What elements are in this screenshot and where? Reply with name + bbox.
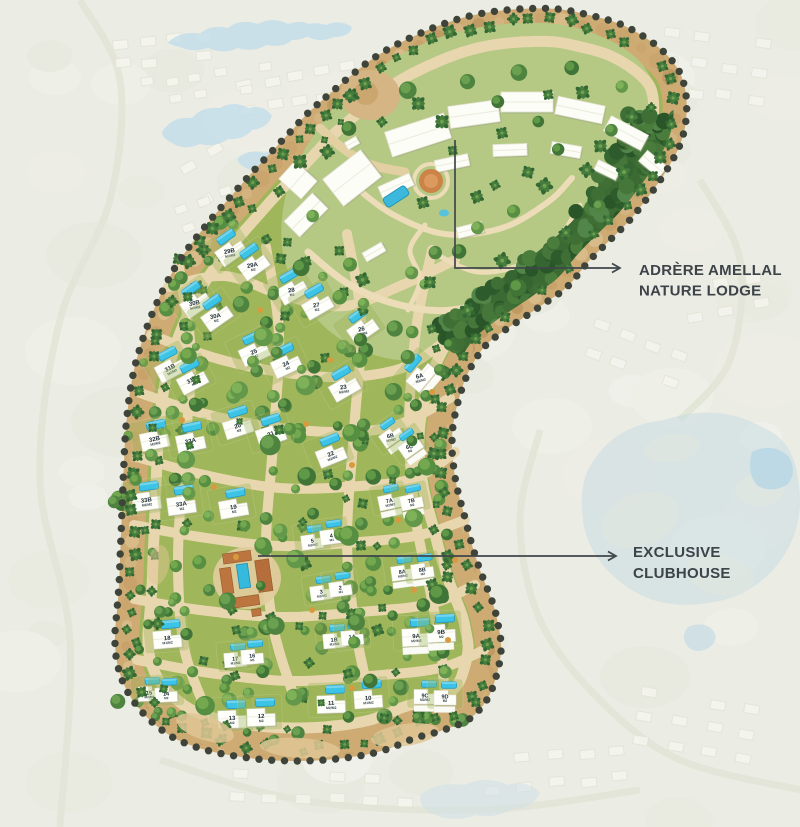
svg-text:M2: M2 xyxy=(164,696,169,700)
svg-text:CLUBHOUSE: CLUBHOUSE xyxy=(633,565,731,582)
svg-text:EXCLUSIVE: EXCLUSIVE xyxy=(633,544,721,561)
svg-text:M2: M2 xyxy=(314,308,319,313)
svg-text:M2: M2 xyxy=(439,635,444,639)
svg-text:M1: M1 xyxy=(329,538,334,543)
svg-text:M2: M2 xyxy=(443,699,448,703)
svg-text:NATURE LODGE: NATURE LODGE xyxy=(639,283,762,300)
svg-text:M2: M2 xyxy=(259,719,264,723)
svg-text:M2: M2 xyxy=(230,721,235,725)
svg-text:M1/M2: M1/M2 xyxy=(363,701,374,706)
svg-text:ADRÈRE AMELLAL: ADRÈRE AMELLAL xyxy=(639,262,782,279)
svg-text:M1: M1 xyxy=(250,658,255,662)
svg-text:M2: M2 xyxy=(232,509,237,514)
svg-text:M2: M2 xyxy=(420,572,425,577)
svg-text:M2/M2: M2/M2 xyxy=(326,706,337,710)
svg-text:M2: M2 xyxy=(179,507,184,512)
svg-text:M1: M1 xyxy=(338,590,343,595)
